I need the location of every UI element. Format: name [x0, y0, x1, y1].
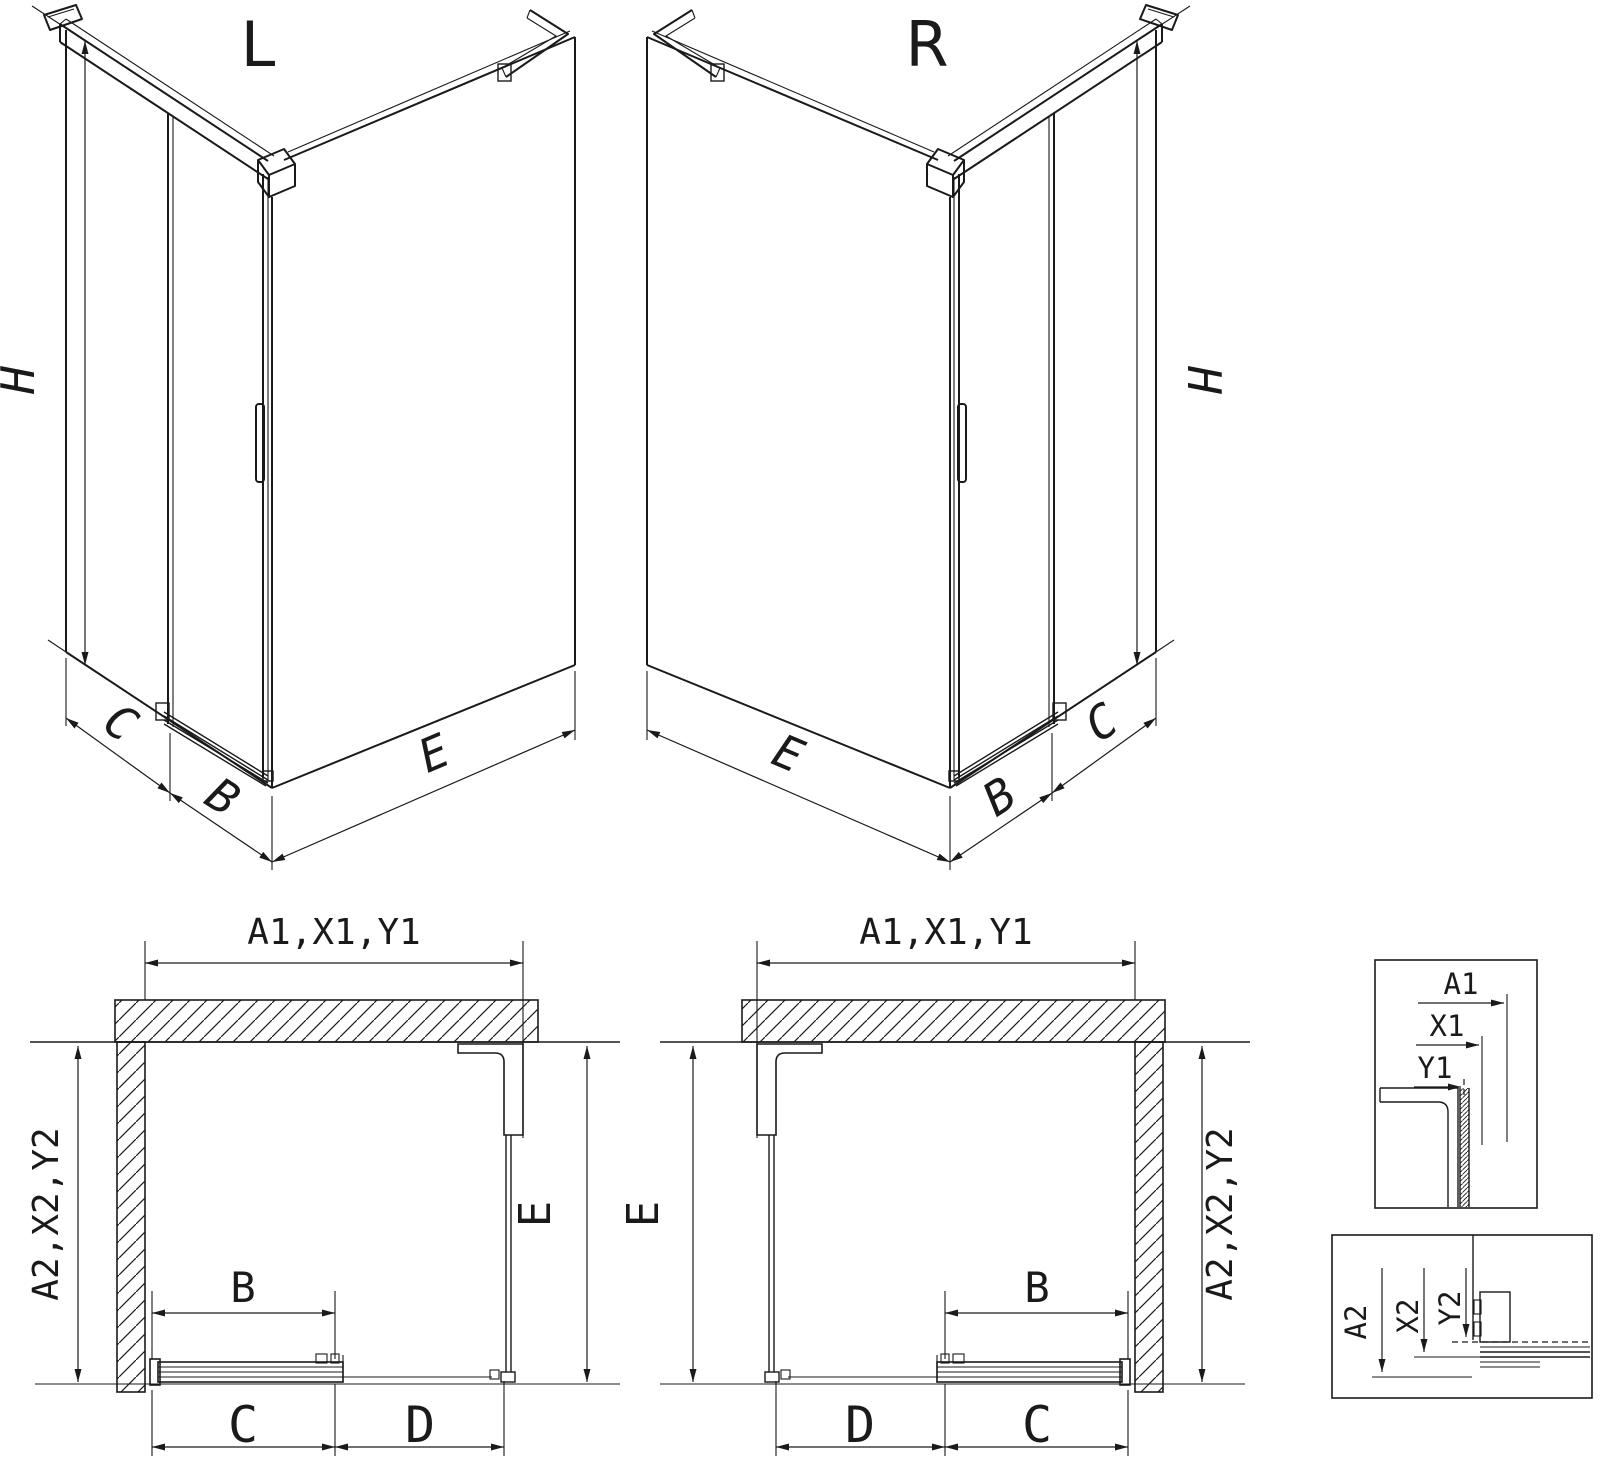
plan-R-dim-right: A2,X2,Y2	[1200, 1127, 1241, 1300]
wall-hatching	[115, 1000, 1165, 1392]
plan-R-dim-E: E	[618, 1201, 669, 1228]
detail-bottom-profile: A2 X2 Y2	[1332, 1235, 1592, 1398]
shower-enclosure-technical-drawing: L H C B E R H E B C A1,X1,Y1 A2,X2,Y2 E …	[0, 0, 1600, 1458]
plan-L-dim-left: A2,X2,Y2	[26, 1127, 67, 1300]
plan-R-dim-D: D	[845, 1396, 875, 1454]
dim-label-B-L: B	[196, 766, 249, 826]
drawing-sheet: L H C B E R H E B C A1,X1,Y1 A2,X2,Y2 E …	[0, 0, 1600, 1458]
dim-label-B-R: B	[973, 766, 1026, 826]
plan-R-dim-C: C	[1022, 1396, 1052, 1454]
detail-top-A1: A1	[1444, 967, 1479, 1001]
plan-L-dim-B: B	[230, 1263, 255, 1312]
detail-bottom-Y2: Y2	[1433, 1291, 1467, 1326]
view-title-right: R	[905, 8, 948, 81]
detail-top-Y1: Y1	[1418, 1051, 1453, 1085]
dim-label-E-R: E	[765, 723, 812, 784]
plan-R-dim-top: A1,X1,Y1	[859, 912, 1032, 953]
view-title-left: L	[241, 8, 276, 81]
dim-label-height-R: H	[1177, 365, 1231, 394]
plan-L-dim-top: A1,X1,Y1	[247, 912, 420, 953]
plan-L-dim-D: D	[405, 1396, 435, 1454]
plan-L-dim-E: E	[510, 1201, 561, 1228]
detail-bottom-X2: X2	[1391, 1299, 1425, 1334]
plan-R-dim-B: B	[1024, 1263, 1049, 1312]
detail-top-X1: X1	[1430, 1009, 1465, 1043]
iso-view-left: L H C B E	[0, 5, 575, 870]
plan-L-dim-C: C	[228, 1396, 258, 1454]
dim-label-E-L: E	[410, 723, 457, 784]
plan-view-left: A1,X1,Y1 A2,X2,Y2 E B C D	[26, 912, 620, 1456]
iso-view-right: R H E B C	[647, 5, 1231, 870]
dim-label-height-L: H	[0, 366, 45, 395]
detail-top-profile: A1 X1 Y1	[1375, 960, 1537, 1208]
detail-bottom-A2: A2	[1339, 1305, 1373, 1340]
